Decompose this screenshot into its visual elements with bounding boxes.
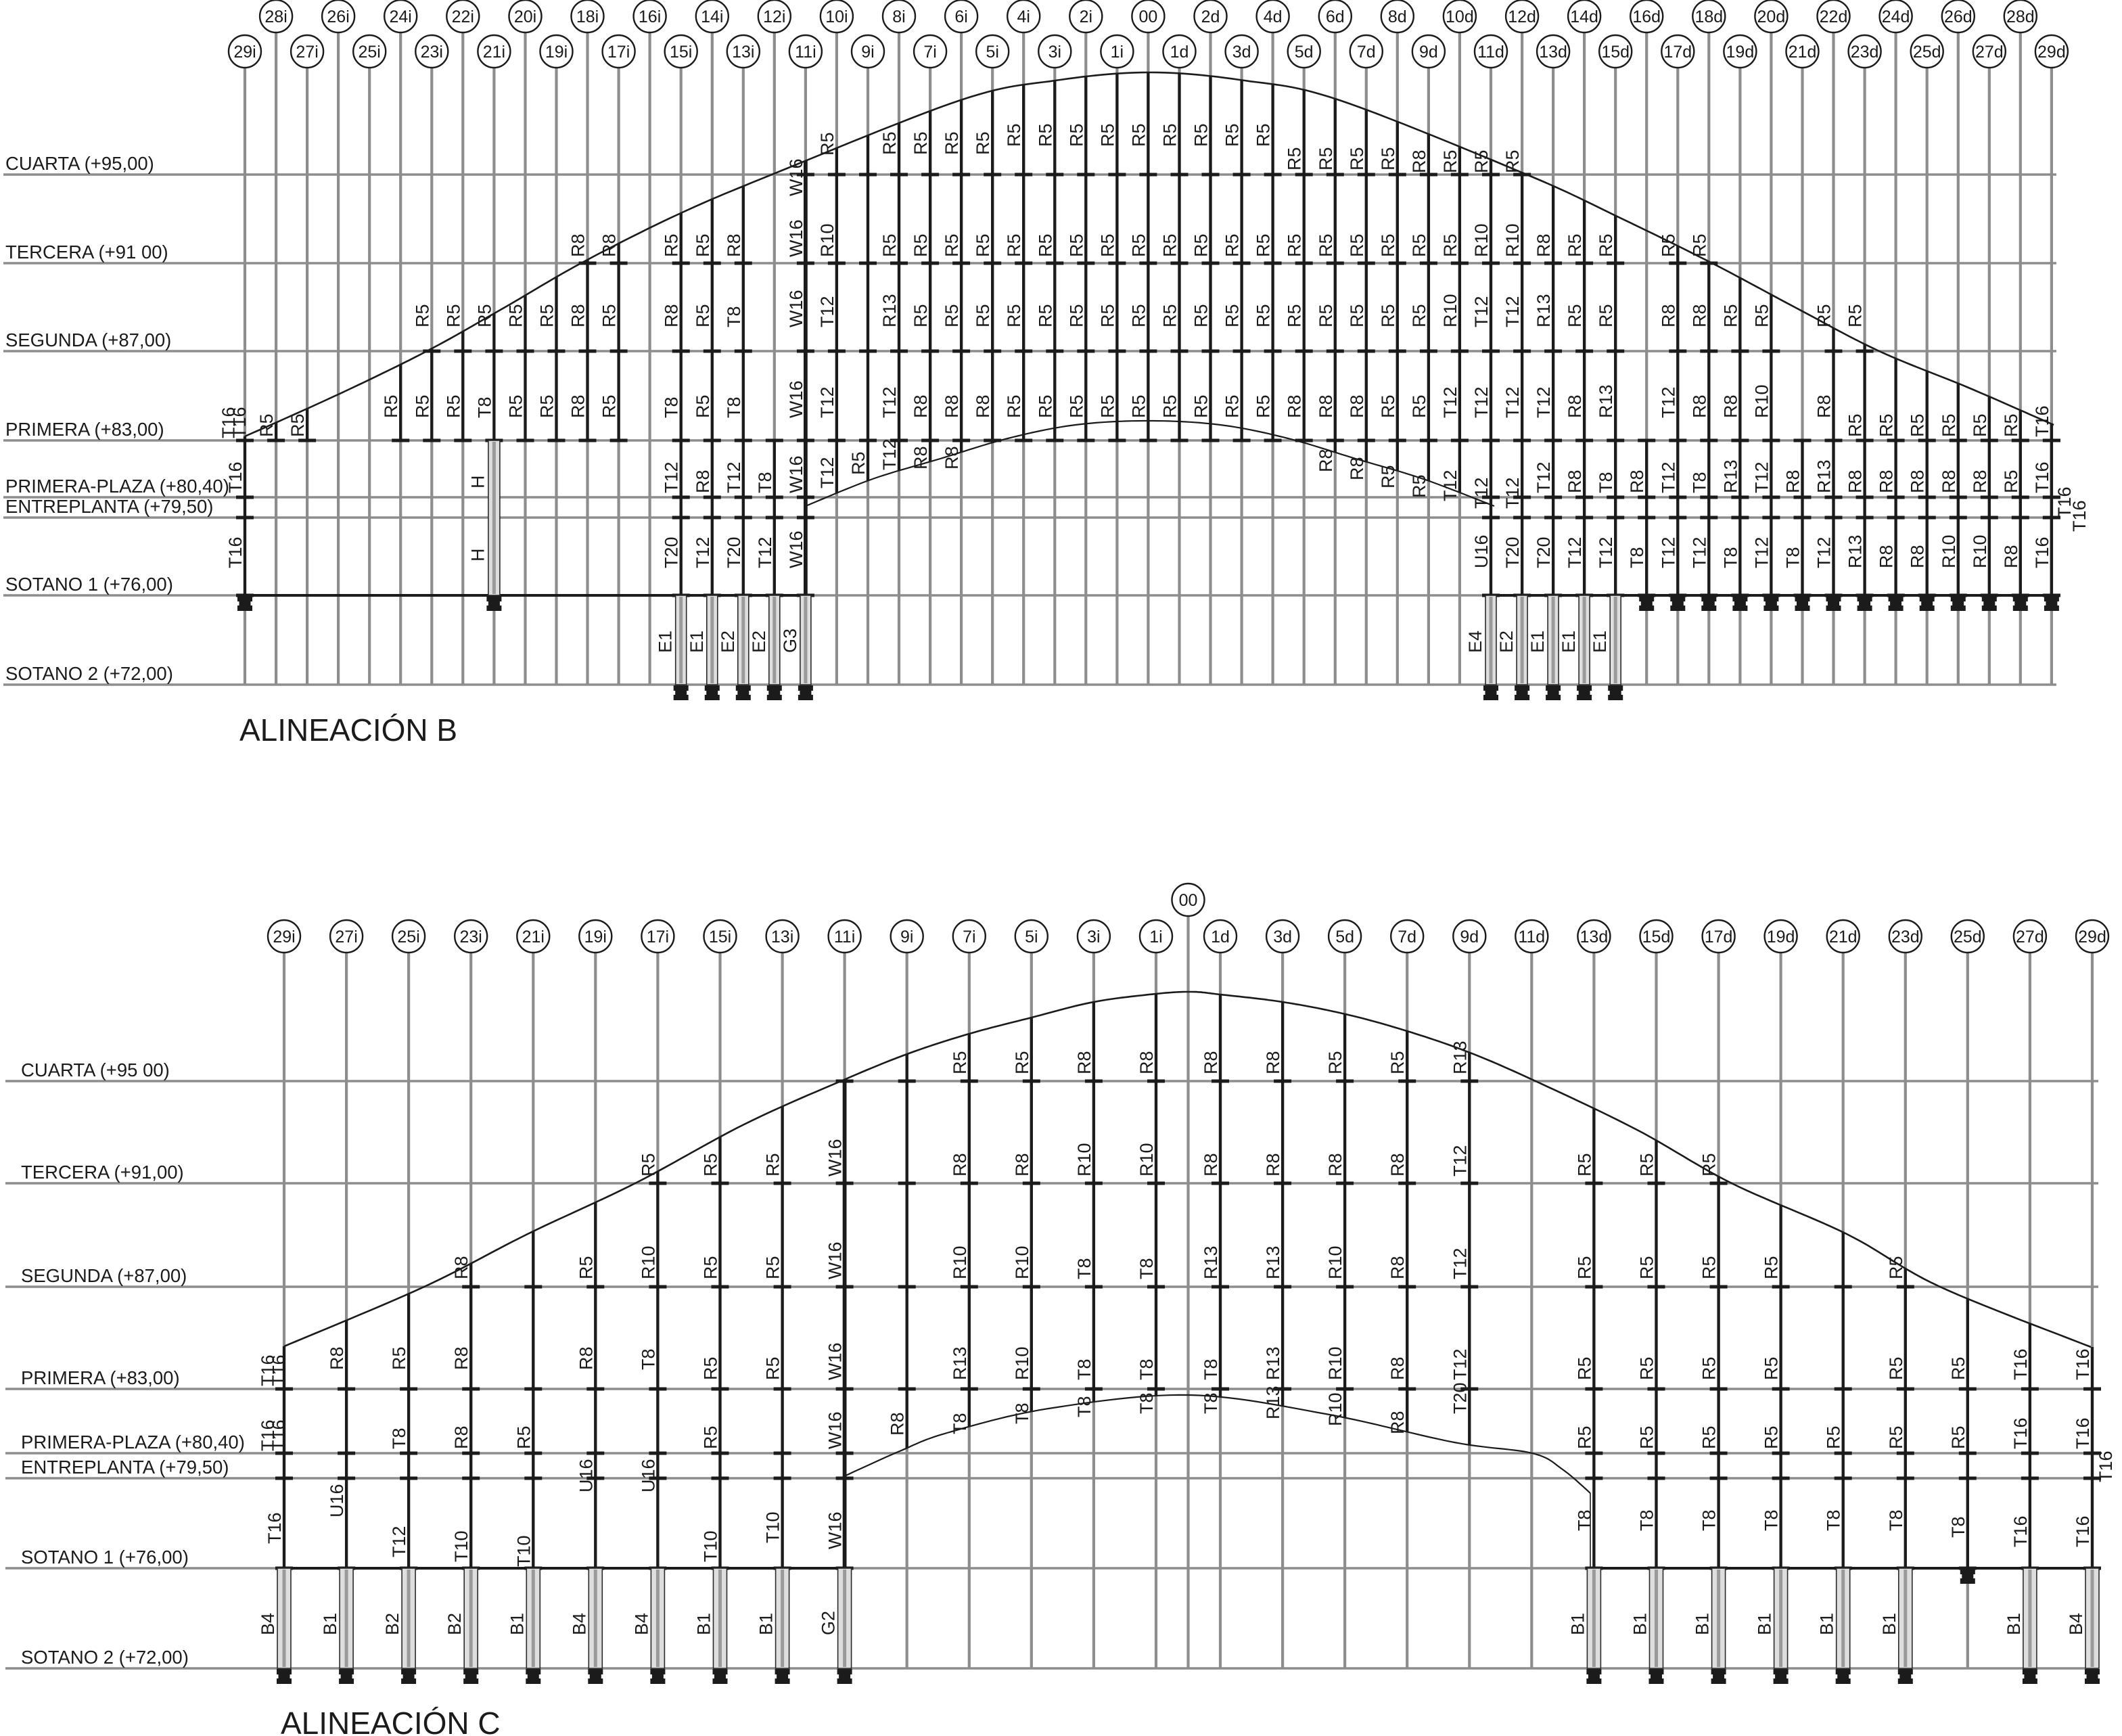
svg-text:R8: R8 [910, 394, 931, 418]
svg-text:R5: R5 [1253, 304, 1274, 327]
svg-text:12i: 12i [763, 7, 785, 26]
svg-text:R8: R8 [1689, 394, 1709, 418]
svg-text:6d: 6d [1326, 7, 1345, 26]
svg-text:R5: R5 [1471, 150, 1492, 173]
svg-text:W16: W16 [825, 1511, 846, 1549]
svg-text:25i: 25i [359, 43, 381, 62]
svg-text:R10: R10 [1471, 223, 1492, 257]
svg-text:ALINEACIÓN B: ALINEACIÓN B [239, 712, 457, 748]
svg-text:R5: R5 [1886, 1256, 1906, 1279]
svg-text:W16: W16 [786, 290, 806, 327]
svg-text:R5: R5 [1285, 304, 1305, 327]
svg-text:R5: R5 [1409, 233, 1429, 257]
svg-text:R5: R5 [848, 451, 869, 475]
svg-text:R8: R8 [1387, 1356, 1408, 1380]
svg-text:R5: R5 [1699, 1256, 1720, 1279]
svg-text:R5: R5 [1035, 304, 1055, 327]
svg-text:T16: T16 [269, 1419, 289, 1451]
svg-text:R10: R10 [817, 223, 837, 257]
svg-text:R5: R5 [910, 131, 931, 155]
svg-text:PRIMERA (+83,00): PRIMERA (+83,00) [5, 419, 164, 440]
svg-text:R10: R10 [1751, 384, 1772, 418]
svg-text:B4: B4 [2066, 1613, 2086, 1635]
svg-text:T12: T12 [662, 461, 682, 493]
svg-text:3i: 3i [1087, 928, 1100, 946]
svg-text:T8: T8 [1720, 547, 1740, 568]
svg-text:R5: R5 [1347, 147, 1367, 170]
svg-text:R5: R5 [1012, 1051, 1032, 1074]
svg-text:R5: R5 [1378, 233, 1398, 257]
svg-text:R8: R8 [724, 233, 744, 257]
svg-text:R10: R10 [950, 1246, 970, 1279]
svg-text:R10: R10 [1502, 223, 1523, 257]
svg-text:R5: R5 [1970, 413, 1990, 437]
svg-text:R8: R8 [1908, 545, 1928, 568]
svg-text:R5: R5 [1751, 304, 1772, 327]
svg-text:R5: R5 [1160, 123, 1180, 147]
svg-text:R5: R5 [942, 233, 962, 257]
svg-text:R5: R5 [817, 132, 837, 156]
svg-text:R5: R5 [1191, 304, 1212, 327]
svg-text:T12: T12 [1502, 386, 1523, 418]
svg-text:R5: R5 [1565, 233, 1585, 257]
svg-text:R5: R5 [1004, 233, 1024, 257]
svg-text:R5: R5 [1035, 123, 1055, 147]
svg-text:R5: R5 [1761, 1356, 1782, 1380]
svg-text:T8: T8 [474, 396, 494, 418]
svg-text:T16: T16 [264, 1512, 285, 1544]
svg-text:R8: R8 [1814, 394, 1835, 418]
svg-text:R5: R5 [1886, 1425, 1906, 1449]
svg-text:R5: R5 [1253, 123, 1274, 147]
svg-text:T8: T8 [1699, 1509, 1720, 1531]
svg-text:T8: T8 [724, 306, 744, 327]
svg-text:15i: 15i [709, 928, 731, 946]
svg-text:CUARTA (+95 00): CUARTA (+95 00) [21, 1059, 170, 1080]
svg-text:00: 00 [1179, 891, 1198, 910]
svg-text:B1: B1 [1692, 1613, 1713, 1635]
svg-text:T12: T12 [1814, 536, 1835, 568]
svg-text:R5: R5 [576, 1256, 596, 1279]
svg-text:R8: R8 [1409, 150, 1429, 173]
svg-text:R5: R5 [1066, 304, 1086, 327]
svg-text:R5: R5 [1565, 304, 1585, 327]
svg-text:R5: R5 [701, 1256, 721, 1279]
svg-text:7d: 7d [1398, 928, 1416, 946]
svg-text:13d: 13d [1539, 43, 1567, 62]
svg-text:R5: R5 [1160, 304, 1180, 327]
svg-text:B1: B1 [2004, 1613, 2024, 1635]
svg-text:R5: R5 [879, 131, 900, 155]
svg-text:R8: R8 [1325, 1153, 1345, 1177]
svg-text:R5: R5 [942, 304, 962, 327]
svg-text:T8: T8 [1136, 1358, 1157, 1380]
svg-text:R5: R5 [1347, 233, 1367, 257]
svg-text:3d: 3d [1273, 928, 1292, 946]
svg-text:R5: R5 [1574, 1425, 1594, 1449]
svg-text:R8: R8 [1387, 1411, 1408, 1434]
svg-text:R13: R13 [1263, 1346, 1283, 1380]
svg-text:5d: 5d [1335, 928, 1354, 946]
svg-text:T8: T8 [1574, 1509, 1594, 1531]
svg-text:B1: B1 [1817, 1613, 1837, 1635]
svg-text:1i: 1i [1111, 43, 1124, 62]
svg-text:T8: T8 [1136, 1392, 1157, 1414]
svg-text:T16: T16 [2032, 405, 2052, 437]
svg-text:H: H [467, 549, 488, 562]
svg-text:R5: R5 [1699, 1425, 1720, 1449]
svg-text:R8: R8 [1876, 545, 1897, 568]
svg-text:ENTREPLANTA (+79,50): ENTREPLANTA (+79,50) [21, 1457, 229, 1478]
svg-text:T10: T10 [451, 1530, 471, 1562]
svg-text:T8: T8 [1074, 1258, 1094, 1279]
svg-text:23d: 23d [1851, 43, 1879, 62]
svg-text:T12: T12 [1502, 477, 1523, 509]
svg-text:17d: 17d [1705, 928, 1733, 946]
svg-text:23i: 23i [421, 43, 443, 62]
svg-text:24d: 24d [1882, 7, 1910, 26]
svg-text:17d: 17d [1663, 43, 1692, 62]
svg-text:R8: R8 [942, 446, 962, 470]
svg-text:27d: 27d [2016, 928, 2044, 946]
svg-text:R5: R5 [599, 394, 620, 418]
svg-text:R5: R5 [1378, 465, 1398, 488]
svg-text:R5: R5 [1347, 304, 1367, 327]
svg-text:15i: 15i [670, 43, 692, 62]
svg-text:W16: W16 [825, 1411, 846, 1449]
svg-text:R5: R5 [506, 304, 526, 327]
svg-text:R5: R5 [1316, 147, 1336, 170]
svg-text:T12: T12 [1658, 536, 1678, 568]
svg-text:W16: W16 [786, 455, 806, 493]
svg-text:T12: T12 [693, 536, 713, 568]
svg-text:R5: R5 [1761, 1425, 1782, 1449]
svg-text:R13: R13 [1201, 1246, 1221, 1279]
svg-text:R5: R5 [1574, 1356, 1594, 1380]
svg-text:9d: 9d [1419, 43, 1438, 62]
svg-text:2d: 2d [1201, 7, 1220, 26]
svg-text:T16: T16 [269, 1354, 289, 1386]
svg-text:G2: G2 [818, 1611, 839, 1635]
svg-text:SEGUNDA (+87,00): SEGUNDA (+87,00) [5, 329, 171, 350]
svg-text:00: 00 [1138, 7, 1157, 26]
svg-text:11i: 11i [834, 928, 856, 946]
svg-text:R5: R5 [1253, 394, 1274, 418]
svg-text:R5: R5 [506, 394, 526, 418]
svg-text:T8: T8 [1761, 1509, 1782, 1531]
svg-text:R8: R8 [568, 233, 589, 257]
svg-text:T12: T12 [755, 536, 775, 568]
svg-text:R5: R5 [1387, 1051, 1408, 1074]
svg-text:29d: 29d [2078, 928, 2106, 946]
svg-text:T16: T16 [225, 536, 246, 568]
svg-text:T8: T8 [1783, 547, 1803, 568]
svg-text:20d: 20d [1757, 7, 1786, 26]
svg-text:B1: B1 [1567, 1613, 1588, 1635]
svg-text:E1: E1 [1559, 631, 1579, 653]
svg-text:R5: R5 [256, 413, 277, 437]
svg-text:R5: R5 [537, 394, 557, 418]
svg-text:U16: U16 [327, 1484, 347, 1517]
svg-text:R13: R13 [879, 294, 900, 327]
svg-text:14d: 14d [1570, 7, 1598, 26]
svg-text:13i: 13i [732, 43, 754, 62]
svg-text:21d: 21d [1789, 43, 1817, 62]
svg-text:R8: R8 [1627, 470, 1647, 493]
svg-text:8i: 8i [892, 7, 905, 26]
svg-text:T8: T8 [638, 1348, 658, 1370]
svg-text:T8: T8 [950, 1413, 970, 1434]
svg-text:R5: R5 [1502, 150, 1523, 173]
svg-text:R5: R5 [1128, 233, 1149, 257]
svg-text:R8: R8 [1201, 1051, 1221, 1074]
svg-text:T12: T12 [1471, 477, 1492, 509]
svg-text:R5: R5 [1191, 394, 1212, 418]
svg-text:B4: B4 [258, 1613, 278, 1635]
svg-text:SOTANO 2 (+72,00): SOTANO 2 (+72,00) [21, 1647, 189, 1668]
svg-text:18d: 18d [1694, 7, 1723, 26]
svg-text:T8: T8 [1012, 1402, 1032, 1424]
svg-text:ALINEACIÓN C: ALINEACIÓN C [281, 1706, 501, 1736]
svg-text:25i: 25i [397, 928, 419, 946]
svg-text:W16: W16 [825, 1139, 846, 1177]
svg-text:1d: 1d [1211, 928, 1230, 946]
svg-text:T16: T16 [2096, 1451, 2116, 1482]
svg-text:R8: R8 [1263, 1051, 1283, 1074]
svg-text:T16: T16 [2010, 1515, 2031, 1547]
svg-text:28d: 28d [2006, 7, 2035, 26]
svg-text:G3: G3 [780, 629, 800, 653]
svg-text:R5: R5 [1948, 1425, 1968, 1449]
svg-text:16i: 16i [639, 7, 661, 26]
svg-text:R5: R5 [1097, 233, 1117, 257]
svg-text:R5: R5 [973, 304, 993, 327]
svg-text:T16: T16 [2032, 461, 2052, 493]
svg-text:T8: T8 [1201, 1392, 1221, 1414]
svg-text:R5: R5 [537, 304, 557, 327]
svg-text:T8: T8 [389, 1427, 409, 1449]
svg-text:R8: R8 [887, 1412, 908, 1436]
svg-text:T12: T12 [1658, 386, 1678, 418]
svg-text:R5: R5 [2001, 470, 2021, 493]
svg-text:T12: T12 [1450, 1348, 1470, 1380]
svg-text:T12: T12 [879, 386, 900, 418]
svg-text:R5: R5 [1637, 1153, 1657, 1177]
svg-text:9d: 9d [1460, 928, 1479, 946]
svg-text:R5: R5 [1222, 304, 1243, 327]
svg-text:16d: 16d [1632, 7, 1661, 26]
svg-text:19i: 19i [584, 928, 607, 946]
svg-text:R5: R5 [443, 394, 463, 418]
svg-text:T16: T16 [229, 407, 250, 438]
svg-text:R10: R10 [1325, 1392, 1345, 1426]
svg-text:R5: R5 [1097, 123, 1117, 147]
svg-text:R5: R5 [701, 1425, 721, 1449]
svg-text:PRIMERA (+83,00): PRIMERA (+83,00) [21, 1367, 180, 1388]
svg-text:R5: R5 [1440, 233, 1460, 257]
svg-text:W16: W16 [825, 1241, 846, 1279]
svg-text:T12: T12 [1440, 386, 1460, 418]
svg-text:R5: R5 [1066, 123, 1086, 147]
svg-text:R8: R8 [1201, 1153, 1221, 1177]
svg-text:R8: R8 [1939, 470, 1959, 493]
svg-text:T12: T12 [1751, 536, 1772, 568]
svg-text:R5: R5 [1004, 123, 1024, 147]
svg-text:B2: B2 [382, 1613, 402, 1635]
svg-text:29d: 29d [2037, 43, 2066, 62]
svg-text:T16: T16 [2073, 1417, 2093, 1449]
svg-text:23d: 23d [1891, 928, 1920, 946]
svg-text:PRIMERA-PLAZA (+80,40): PRIMERA-PLAZA (+80,40) [5, 476, 229, 497]
svg-text:R5: R5 [1128, 304, 1149, 327]
svg-text:B4: B4 [631, 1613, 651, 1635]
svg-text:R5: R5 [662, 233, 682, 257]
svg-text:25d: 25d [1954, 928, 1982, 946]
svg-text:T8: T8 [724, 396, 744, 418]
svg-text:R5: R5 [942, 131, 962, 155]
svg-text:R8: R8 [1387, 1153, 1408, 1177]
svg-text:R5: R5 [1409, 394, 1429, 418]
svg-text:T12: T12 [1689, 536, 1709, 568]
svg-text:5i: 5i [986, 43, 998, 62]
svg-text:11d: 11d [1477, 43, 1504, 62]
svg-text:B4: B4 [569, 1613, 589, 1635]
svg-text:R13: R13 [1845, 534, 1866, 568]
svg-text:R8: R8 [1316, 394, 1336, 418]
svg-text:T16: T16 [2032, 536, 2052, 568]
svg-text:R10: R10 [1136, 1143, 1157, 1177]
svg-text:R8: R8 [599, 233, 620, 257]
svg-text:29i: 29i [233, 43, 256, 62]
svg-text:R5: R5 [1222, 394, 1243, 418]
svg-text:T8: T8 [662, 396, 682, 418]
svg-text:T16: T16 [2010, 1348, 2031, 1380]
svg-text:R5: R5 [1097, 394, 1117, 418]
svg-text:R5: R5 [1814, 304, 1835, 327]
svg-text:R5: R5 [1316, 304, 1336, 327]
svg-text:27i: 27i [296, 43, 318, 62]
svg-text:R5: R5 [1574, 1256, 1594, 1279]
svg-text:R5: R5 [1845, 304, 1866, 327]
svg-text:R5: R5 [1035, 233, 1055, 257]
svg-text:T12: T12 [817, 296, 837, 327]
svg-text:9i: 9i [900, 928, 913, 946]
svg-text:R8: R8 [1387, 1256, 1408, 1279]
svg-text:E2: E2 [749, 631, 769, 653]
svg-text:R5: R5 [389, 1346, 409, 1370]
svg-text:R8: R8 [1347, 457, 1367, 480]
svg-text:R5: R5 [1699, 1153, 1720, 1177]
svg-text:T12: T12 [1471, 386, 1492, 418]
svg-text:T12: T12 [1502, 296, 1523, 327]
svg-text:22d: 22d [1820, 7, 1848, 26]
svg-text:R8: R8 [576, 1346, 596, 1370]
svg-text:R13: R13 [1720, 459, 1740, 493]
svg-text:W16: W16 [825, 1342, 846, 1380]
svg-text:3i: 3i [1048, 43, 1061, 62]
svg-text:R8: R8 [1347, 394, 1367, 418]
svg-text:R8: R8 [1316, 449, 1336, 472]
svg-text:R5: R5 [1285, 147, 1305, 170]
svg-text:R5: R5 [1191, 123, 1212, 147]
svg-text:R5: R5 [1191, 233, 1212, 257]
svg-text:26i: 26i [327, 7, 349, 26]
svg-text:R5: R5 [1596, 233, 1616, 257]
svg-text:R8: R8 [942, 394, 962, 418]
svg-text:B1: B1 [694, 1613, 714, 1635]
svg-text:R8: R8 [693, 470, 713, 493]
svg-text:R13: R13 [1533, 294, 1554, 327]
svg-text:R5: R5 [443, 304, 463, 327]
svg-text:R5: R5 [973, 233, 993, 257]
svg-text:R5: R5 [474, 304, 494, 327]
svg-text:B1: B1 [507, 1613, 527, 1635]
svg-text:R5: R5 [1637, 1425, 1657, 1449]
svg-text:R8: R8 [568, 304, 589, 327]
svg-text:14i: 14i [701, 7, 723, 26]
svg-text:R5: R5 [693, 233, 713, 257]
svg-text:R13: R13 [950, 1346, 970, 1380]
svg-text:R5: R5 [381, 394, 401, 418]
svg-text:B2: B2 [444, 1613, 465, 1635]
svg-text:R5: R5 [1253, 233, 1274, 257]
svg-text:R5: R5 [2001, 413, 2021, 437]
svg-text:T20: T20 [662, 536, 682, 568]
svg-text:T8: T8 [1074, 1358, 1094, 1380]
svg-text:7d: 7d [1357, 43, 1376, 62]
svg-text:T8: T8 [1627, 547, 1647, 568]
svg-text:T8: T8 [755, 472, 775, 493]
svg-text:T12: T12 [817, 457, 837, 488]
svg-text:E2: E2 [1496, 631, 1517, 653]
svg-text:R5: R5 [1316, 233, 1336, 257]
svg-text:SOTANO 1 (+76,00): SOTANO 1 (+76,00) [21, 1547, 189, 1568]
svg-text:R8: R8 [1136, 1051, 1157, 1074]
svg-text:R5: R5 [1409, 304, 1429, 327]
svg-text:T8: T8 [1136, 1258, 1157, 1279]
svg-text:R5: R5 [1939, 413, 1959, 437]
svg-text:R8: R8 [1970, 470, 1990, 493]
svg-text:R5: R5 [1948, 1356, 1968, 1380]
svg-text:23i: 23i [460, 928, 482, 946]
svg-text:B1: B1 [1630, 1613, 1651, 1635]
svg-text:24i: 24i [390, 7, 412, 26]
svg-text:R8: R8 [1908, 470, 1928, 493]
svg-text:E4: E4 [1465, 631, 1485, 653]
svg-text:T8: T8 [1689, 472, 1709, 493]
svg-text:R5: R5 [1845, 413, 1866, 437]
svg-text:R5: R5 [1699, 1356, 1720, 1380]
svg-text:T8: T8 [1596, 472, 1616, 493]
svg-text:R10: R10 [1970, 534, 1990, 568]
svg-text:R5: R5 [1222, 233, 1243, 257]
svg-text:T16: T16 [2010, 1417, 2031, 1449]
svg-text:25d: 25d [1913, 43, 1941, 62]
svg-text:13i: 13i [771, 928, 793, 946]
svg-text:T8: T8 [1948, 1516, 1968, 1538]
svg-text:T12: T12 [1596, 536, 1616, 568]
svg-text:R5: R5 [1097, 304, 1117, 327]
svg-text:R5: R5 [1596, 304, 1616, 327]
svg-text:R8: R8 [451, 1256, 471, 1279]
svg-text:PRIMERA-PLAZA (+80,40): PRIMERA-PLAZA (+80,40) [21, 1432, 245, 1453]
svg-text:R5: R5 [1222, 123, 1243, 147]
svg-text:T12: T12 [1450, 1145, 1470, 1177]
svg-text:10d: 10d [1446, 7, 1474, 26]
svg-text:17i: 17i [647, 928, 669, 946]
svg-text:T10: T10 [701, 1530, 721, 1562]
svg-text:T12: T12 [817, 386, 837, 418]
